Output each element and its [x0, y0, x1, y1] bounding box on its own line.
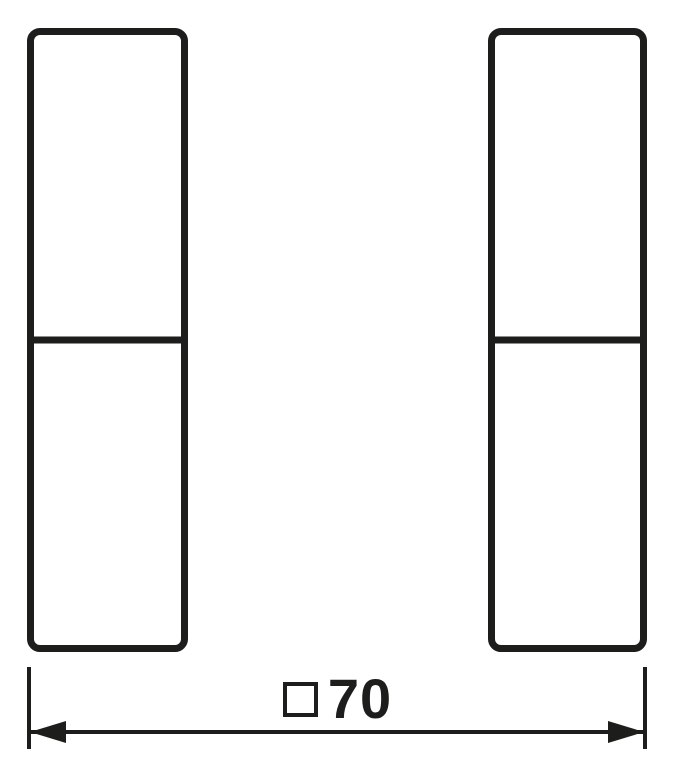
- rocker-left: [27, 28, 188, 652]
- rocker-left-divider: [34, 337, 181, 344]
- rocker-right-divider: [495, 337, 640, 344]
- arrow-right-icon: [608, 721, 644, 743]
- dimension-line: [29, 730, 645, 734]
- rocker-right: [488, 28, 647, 652]
- dimension-label: 70: [0, 676, 675, 722]
- dimension-value: 70: [328, 671, 392, 727]
- square-dimension-icon: [283, 682, 318, 717]
- dimension-drawing-canvas: 70: [0, 0, 675, 776]
- arrow-left-icon: [30, 721, 66, 743]
